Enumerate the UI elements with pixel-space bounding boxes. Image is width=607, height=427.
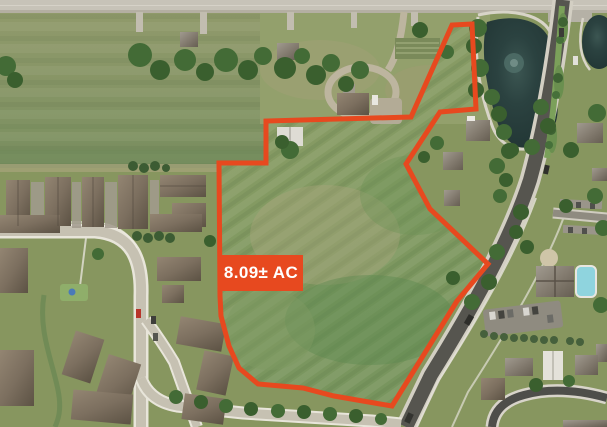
red-car bbox=[136, 309, 141, 318]
satellite-imagery bbox=[0, 0, 607, 427]
parcel-area-label: 8.09± AC bbox=[219, 255, 303, 291]
swimming-pool bbox=[576, 266, 596, 297]
aerial-parcel-map: 8.09± AC bbox=[0, 0, 607, 427]
farm-house bbox=[337, 93, 369, 115]
parcel-area-text: 8.09± AC bbox=[224, 263, 298, 283]
playground bbox=[60, 284, 88, 301]
shed-roof bbox=[180, 32, 198, 47]
